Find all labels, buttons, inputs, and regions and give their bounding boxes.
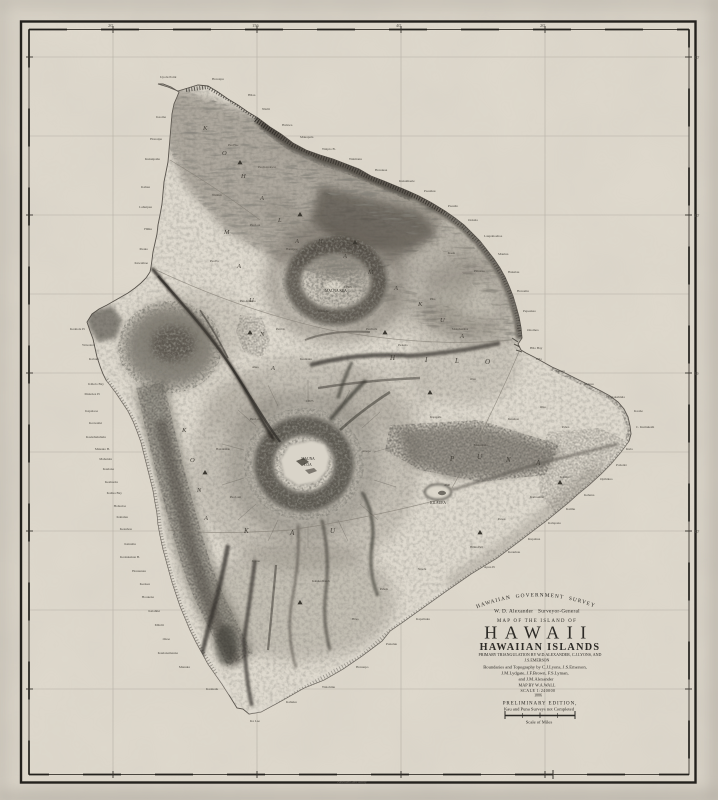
- svg-text:20': 20': [540, 23, 546, 28]
- svg-text:L: L: [454, 357, 459, 365]
- svg-text:Keokea: Keokea: [140, 582, 151, 586]
- svg-text:Kapalaoa: Kapalaoa: [85, 409, 98, 413]
- svg-text:Waimanu: Waimanu: [349, 157, 362, 161]
- svg-text:Kahuku Ranch: Kahuku Ranch: [312, 579, 330, 583]
- svg-text:Upolu Point: Upolu Point: [160, 75, 177, 79]
- svg-text:A: A: [342, 253, 347, 260]
- svg-text:K: K: [417, 301, 423, 308]
- svg-text:Hawaiian Govt Survey: Hawaiian Govt Survey: [337, 780, 367, 784]
- svg-text:Honoipu: Honoipu: [212, 77, 224, 81]
- svg-text:Kahaluu: Kahaluu: [117, 515, 129, 519]
- svg-text:A: A: [535, 459, 541, 467]
- svg-text:Opihikao: Opihikao: [600, 477, 613, 481]
- svg-text:Kalalua: Kalalua: [560, 475, 570, 479]
- svg-text:Hakalau: Hakalau: [508, 270, 520, 274]
- svg-text:Puu Pa: Puu Pa: [210, 259, 219, 263]
- svg-text:A: A: [203, 515, 208, 522]
- svg-text:13675: 13675: [306, 399, 314, 403]
- svg-text:Waipio B.: Waipio B.: [322, 147, 336, 151]
- svg-text:N: N: [259, 331, 265, 338]
- svg-text:Kawaihae: Kawaihae: [134, 261, 148, 265]
- svg-text:Kaala: Kaala: [448, 251, 456, 255]
- svg-text:A: A: [459, 333, 464, 340]
- svg-text:Keauhou: Keauhou: [508, 550, 521, 554]
- svg-text:P: P: [449, 455, 455, 463]
- svg-text:Puakala: Puakala: [398, 343, 408, 347]
- svg-text:Punaluu: Punaluu: [386, 642, 397, 646]
- svg-text:Kainaliu: Kainaliu: [124, 542, 136, 546]
- svg-text:Holualoa: Holualoa: [114, 504, 127, 508]
- svg-text:Kaimu: Kaimu: [566, 507, 576, 511]
- svg-text:Keahole Pt: Keahole Pt: [70, 327, 85, 331]
- svg-text:13805: 13805: [344, 285, 352, 289]
- svg-text:Kaulanamauna: Kaulanamauna: [158, 651, 179, 655]
- svg-text:Makuu: Makuu: [584, 382, 594, 386]
- svg-text:Kaohe: Kaohe: [634, 409, 643, 413]
- svg-text:Milolii: Milolii: [155, 623, 164, 627]
- svg-text:L: L: [277, 217, 282, 224]
- svg-text:Okoe: Okoe: [163, 637, 171, 641]
- svg-text:Puako: Puako: [140, 247, 149, 251]
- svg-text:Keahuolu: Keahuolu: [105, 480, 118, 484]
- svg-text:Kahua: Kahua: [141, 185, 150, 189]
- svg-text:8271: 8271: [186, 349, 193, 353]
- svg-text:Ainapo: Ainapo: [362, 449, 371, 453]
- svg-text:40': 40': [694, 55, 700, 60]
- svg-text:Honaunau: Honaunau: [132, 569, 146, 573]
- svg-text:Makolea Pt: Makolea Pt: [84, 392, 100, 396]
- svg-text:Kalaieha: Kalaieha: [318, 309, 329, 313]
- svg-text:40': 40': [694, 529, 700, 534]
- svg-text:Honokaa: Honokaa: [375, 168, 388, 172]
- svg-text:O: O: [190, 457, 195, 464]
- svg-text:Kailua Bay: Kailua Bay: [107, 491, 123, 495]
- svg-text:K: K: [243, 527, 249, 535]
- svg-text:Kupahua: Kupahua: [528, 537, 541, 541]
- svg-text:Puu Kawaiwai: Puu Kawaiwai: [258, 165, 276, 169]
- svg-text:Ookala: Ookala: [468, 218, 478, 222]
- svg-text:M: M: [367, 269, 374, 276]
- svg-text:Pepeekeo: Pepeekeo: [523, 309, 536, 313]
- svg-text:Waimea: Waimea: [212, 193, 222, 197]
- svg-text:Laupahoehoe: Laupahoehoe: [484, 234, 503, 238]
- svg-text:Maulua: Maulua: [498, 252, 509, 256]
- svg-text:20': 20': [108, 23, 114, 28]
- svg-text:O: O: [485, 358, 490, 366]
- svg-text:Kamoamoa: Kamoamoa: [530, 495, 544, 499]
- svg-text:A: A: [270, 365, 275, 372]
- svg-text:Honuapo: Honuapo: [356, 665, 369, 669]
- svg-text:Ninole: Ninole: [418, 567, 427, 571]
- svg-text:Hilo: Hilo: [536, 357, 542, 361]
- svg-text:K: K: [181, 427, 187, 434]
- svg-text:Honokohau: Honokohau: [216, 447, 230, 451]
- svg-text:Keaau: Keaau: [556, 369, 565, 373]
- svg-text:Puu Lehua: Puu Lehua: [250, 417, 264, 421]
- svg-text:Piihonua: Piihonua: [474, 269, 485, 273]
- svg-text:Apua Pt: Apua Pt: [484, 565, 495, 569]
- svg-text:Manuka: Manuka: [179, 665, 191, 669]
- svg-text:Keauhou: Keauhou: [508, 417, 519, 421]
- svg-text:Onomea: Onomea: [527, 328, 539, 332]
- svg-text:A: A: [236, 263, 241, 270]
- svg-text:Kaelehuluhulu: Kaelehuluhulu: [86, 435, 106, 439]
- svg-text:Kapapala: Kapapala: [430, 415, 442, 419]
- svg-text:Mahaiula: Mahaiula: [99, 457, 112, 461]
- svg-text:Keauhou: Keauhou: [120, 527, 133, 531]
- svg-text:Kaoma: Kaoma: [156, 115, 166, 119]
- svg-text:Hihiu: Hihiu: [144, 227, 152, 231]
- svg-text:156: 156: [252, 23, 260, 28]
- svg-text:Kaalualu: Kaalualu: [206, 687, 219, 691]
- svg-text:Kealakekua B.: Kealakekua B.: [120, 555, 140, 559]
- svg-text:H: H: [240, 173, 246, 180]
- svg-text:Keawaiki: Keawaiki: [89, 421, 102, 425]
- svg-text:C. Kumukahi: C. Kumukahi: [636, 425, 654, 429]
- svg-text:Scale of Miles: Scale of Miles: [526, 720, 553, 725]
- svg-text:Keamoku: Keamoku: [300, 357, 312, 361]
- svg-text:Kiholo Bay: Kiholo Bay: [88, 382, 104, 386]
- svg-text:Paauhau: Paauhau: [424, 189, 436, 193]
- svg-text:MAUNA KEA: MAUNA KEA: [325, 289, 347, 293]
- svg-text:Kehena: Kehena: [584, 493, 595, 497]
- svg-text:Kukuipahu: Kukuipahu: [145, 157, 160, 161]
- svg-text:19: 19: [694, 371, 699, 376]
- svg-text:Kalapana: Kalapana: [548, 521, 561, 525]
- svg-text:Puu Loa: Puu Loa: [250, 223, 261, 227]
- svg-text:Honoipu: Honoipu: [150, 137, 162, 141]
- svg-text:Makahanaloa: Makahanaloa: [452, 327, 469, 331]
- svg-text:Pahala: Pahala: [380, 587, 389, 591]
- svg-text:J.S.EMERSON: J.S.EMERSON: [525, 658, 550, 663]
- svg-text:Puu Oo: Puu Oo: [276, 327, 286, 331]
- svg-text:Olaa: Olaa: [470, 377, 476, 381]
- svg-text:Hilo Bay: Hilo Bay: [530, 346, 543, 350]
- svg-text:LOA: LOA: [304, 463, 312, 467]
- svg-text:H: H: [389, 354, 396, 362]
- svg-text:A: A: [259, 195, 264, 202]
- svg-text:Kukuihaele: Kukuihaele: [399, 179, 415, 183]
- svg-text:Puu Kole: Puu Kole: [366, 327, 378, 331]
- svg-text:Kapua: Kapua: [252, 559, 260, 563]
- svg-text:A: A: [289, 529, 295, 537]
- svg-text:KILAUEA: KILAUEA: [430, 501, 446, 505]
- svg-text:A: A: [294, 238, 299, 245]
- svg-text:and J.M.Alexander: and J.M.Alexander: [518, 677, 554, 682]
- svg-text:MAP BY W.A.WALL: MAP BY W.A.WALL: [519, 683, 556, 688]
- svg-text:HAWAII: HAWAII: [484, 623, 594, 643]
- svg-text:Lahuipua: Lahuipua: [139, 205, 152, 209]
- svg-text:Pohoiki: Pohoiki: [616, 463, 627, 467]
- svg-text:Makapala: Makapala: [300, 135, 314, 139]
- svg-text:Waiakahiula: Waiakahiula: [608, 395, 625, 399]
- svg-text:Piha: Piha: [430, 297, 436, 301]
- svg-text:Paauilo: Paauilo: [448, 204, 458, 208]
- svg-text:Hookena: Hookena: [142, 595, 155, 599]
- svg-text:Hilaa: Hilaa: [248, 93, 256, 97]
- svg-text:O: O: [222, 150, 227, 157]
- svg-text:Kula: Kula: [626, 447, 633, 451]
- svg-text:Kaloko: Kaloko: [89, 357, 99, 361]
- svg-text:SCALE 1:240000: SCALE 1:240000: [521, 689, 556, 693]
- svg-text:Kahuku: Kahuku: [286, 700, 297, 704]
- svg-text:MAUNA: MAUNA: [301, 457, 315, 461]
- svg-text:Kaulana: Kaulana: [103, 467, 115, 471]
- svg-text:A: A: [393, 285, 398, 292]
- svg-text:H: H: [317, 238, 323, 245]
- svg-text:Puu Lani: Puu Lani: [230, 495, 241, 499]
- svg-text:Niulii: Niulii: [262, 107, 270, 111]
- svg-text:N: N: [505, 456, 511, 464]
- svg-text:W. D. Alexander Surveyor-Gen: W. D. Alexander Surveyor-General: [494, 609, 580, 615]
- svg-text:Puu Hue: Puu Hue: [228, 143, 239, 147]
- svg-text:Puu Anahulu: Puu Anahulu: [240, 299, 256, 303]
- svg-text:4040: 4040: [444, 483, 451, 487]
- svg-text:Ka Lae: Ka Lae: [250, 719, 260, 723]
- svg-text:Makako B.: Makako B.: [95, 447, 110, 451]
- svg-text:20': 20': [694, 213, 700, 218]
- svg-text:M: M: [223, 229, 230, 236]
- svg-text:Hanaipoe: Hanaipoe: [286, 247, 298, 251]
- svg-text:Panau: Panau: [498, 517, 506, 521]
- svg-text:Ahua: Ahua: [252, 365, 259, 369]
- svg-text:Pahoa: Pahoa: [562, 425, 570, 429]
- svg-text:Hilea: Hilea: [352, 617, 359, 621]
- svg-text:Honomu: Honomu: [517, 289, 529, 293]
- svg-text:Makaopuhi: Makaopuhi: [474, 443, 488, 447]
- svg-text:K: K: [202, 125, 208, 132]
- svg-text:N: N: [196, 487, 202, 494]
- svg-text:Kalahiki: Kalahiki: [148, 609, 160, 613]
- svg-text:Wawaloli: Wawaloli: [82, 343, 95, 347]
- svg-text:Halawa: Halawa: [282, 123, 293, 127]
- svg-text:Waiohinu: Waiohinu: [322, 685, 335, 689]
- svg-text:Olaa: Olaa: [540, 405, 546, 409]
- svg-text:Kau and Puna Surveys not Compl: Kau and Puna Surveys not Completed: [504, 707, 575, 712]
- svg-text:40': 40': [396, 23, 402, 28]
- svg-text:1886: 1886: [534, 694, 542, 698]
- svg-text:Hilina Pali: Hilina Pali: [470, 545, 483, 549]
- svg-text:Kapaliuka: Kapaliuka: [416, 617, 430, 621]
